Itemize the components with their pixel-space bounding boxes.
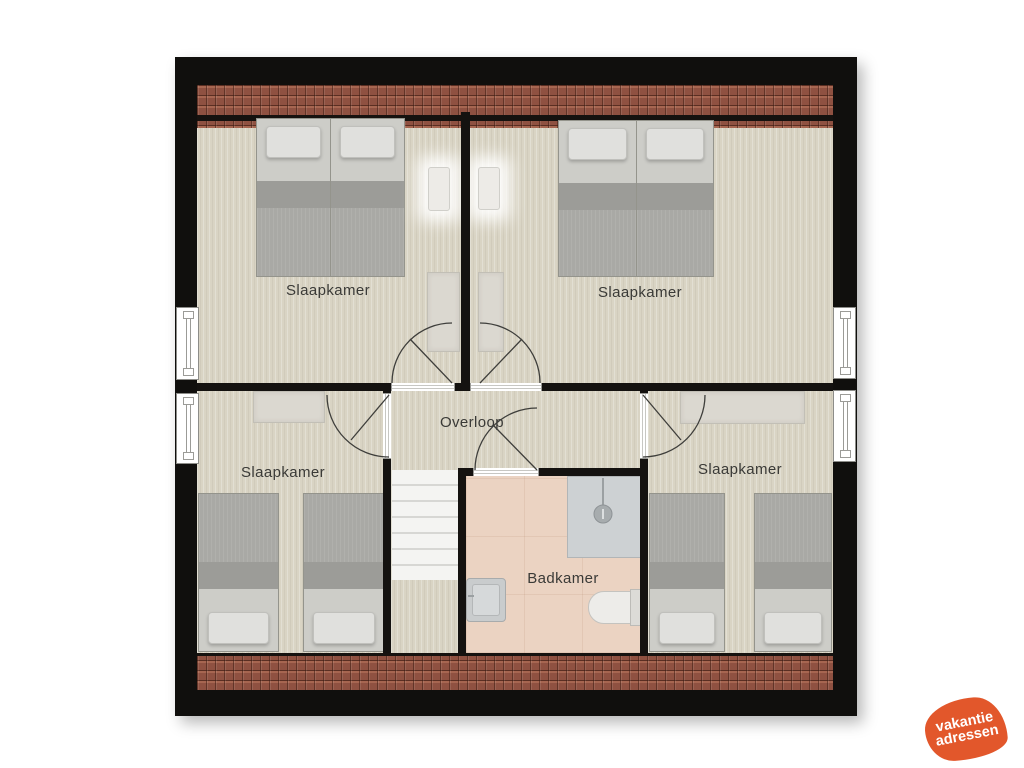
pillow [646,128,704,160]
desk [478,272,504,352]
pillow [340,126,395,158]
window [176,307,199,380]
bed [558,120,637,277]
pillow [313,612,375,644]
room-label-landing: Overloop [407,414,537,431]
wall-top-bedrooms-divider [461,112,470,383]
bed [198,493,279,652]
door-bedroom-bottom-left [383,393,391,459]
door-bedroom-top-left [391,383,455,391]
door-bedroom-bottom-right [640,393,648,459]
logo-blob: vakantie adressen [923,695,1009,763]
door-bathroom [473,468,539,476]
dresser [253,391,325,423]
logo-text: vakantie adressen [932,709,1000,749]
toilet [588,591,634,624]
room-label-bathroom: Badkamer [498,570,628,587]
bed [649,493,725,652]
desk [427,272,460,352]
bed [330,118,405,277]
dresser [680,391,805,424]
wall-bathroom-left [458,468,466,653]
window [833,390,856,462]
room-label-bedroom-bottom-right: Slaapkamer [675,461,805,478]
wall-lamp [478,167,500,210]
room-label-bedroom-top-left: Slaapkamer [263,282,393,299]
window [833,307,856,379]
window [176,393,199,464]
floorplan-page: Slaapkamer Slaapkamer Slaapkamer Slaapka… [0,0,1024,768]
bed [256,118,331,277]
bed [303,493,385,652]
pillow [208,612,269,644]
stairs [392,470,458,580]
pillow [764,612,822,644]
pillow [266,126,321,158]
room-label-bedroom-bottom-left: Slaapkamer [218,464,348,481]
wall-lamp [428,167,450,211]
pillow [568,128,627,160]
bed [636,120,714,277]
shower [567,476,642,558]
bed [754,493,832,652]
door-bedroom-top-right [470,383,542,391]
pillow [659,612,715,644]
roof-tiles-bottom [197,650,833,690]
vakantieadressen-logo: vakantie adressen [925,698,1007,760]
room-label-bedroom-top-right: Slaapkamer [575,284,705,301]
